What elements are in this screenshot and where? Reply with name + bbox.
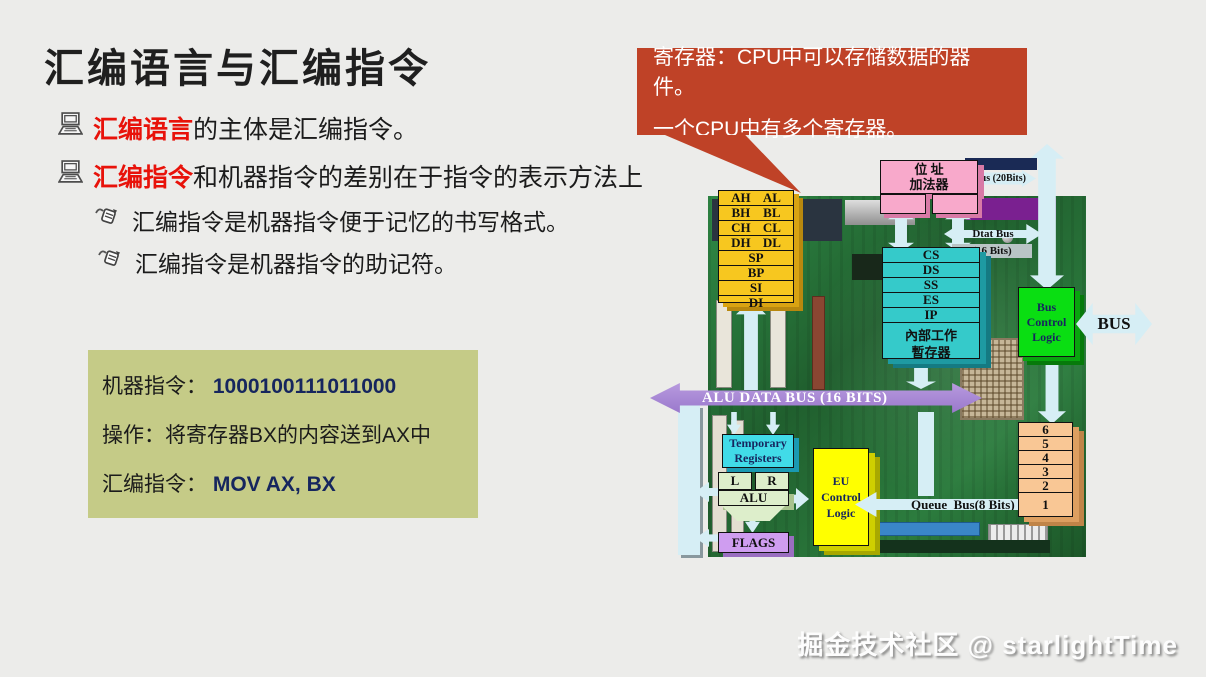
reg-dh: DH	[731, 235, 751, 251]
bullet-1-rest: 的主体是汇编指令。	[193, 116, 418, 144]
agp-slot	[812, 296, 825, 390]
alu-box: ALU	[718, 490, 789, 506]
reg-ds: DS	[923, 262, 940, 278]
address-adder: 位 址 加法器	[880, 160, 978, 194]
eu-line1: EU	[833, 473, 850, 489]
sub-bullet-2: 汇编指令是机器指令的助记符。	[97, 245, 457, 279]
segment-row-cs: CS	[883, 248, 979, 263]
reg-es: ES	[923, 292, 939, 308]
pci-slot	[716, 300, 732, 388]
reg-sp: SP	[748, 250, 763, 266]
segment-row-es: ES	[883, 293, 979, 308]
alu-label: ALU	[740, 490, 767, 506]
segment-row-ip: IP	[883, 308, 979, 323]
machine-instruction-value: 1000100111011000	[213, 375, 396, 398]
machine-instruction-line: 机器指令： 1000100111011000	[102, 370, 464, 400]
temp-regs-line1: Temporary	[729, 436, 787, 451]
reg-ah: AH	[731, 190, 751, 206]
pci-slot	[770, 300, 786, 388]
eu-line2: Control	[821, 489, 861, 505]
temp-regs-line2: Registers	[734, 451, 781, 466]
reg-di: DI	[749, 295, 763, 311]
callout-pointer	[665, 135, 801, 193]
ram-slot	[858, 522, 980, 536]
register-row-sp: SP	[719, 251, 793, 266]
alu-r-label: R	[767, 473, 776, 489]
bcl-line1: Bus	[1037, 300, 1056, 315]
external-bus-arrow: BUS	[1076, 303, 1152, 345]
reg-cl: CL	[763, 220, 781, 236]
alu-input-r: R	[755, 472, 789, 490]
reg-al: AL	[763, 190, 781, 206]
reg-dl: DL	[763, 235, 781, 251]
bus-control-logic: Bus Control Logic	[1018, 287, 1075, 357]
alu-input-l: L	[718, 472, 752, 490]
reg-cs: CS	[923, 247, 940, 263]
assembly-instruction-value: MOV AX, BX	[213, 473, 336, 496]
assembly-instruction-line: 汇编指令： MOV AX, BX	[102, 468, 464, 498]
queue-cell: 1	[1019, 493, 1072, 516]
reg-si: SI	[750, 280, 762, 296]
operation-line: 操作：将寄存器BX的内容送到AX中	[102, 419, 464, 449]
page-title: 汇编语言与汇编指令	[44, 36, 431, 94]
board-edge	[850, 540, 1050, 553]
assembly-instruction-label: 汇编指令：	[102, 473, 207, 496]
internal-registers: 內部工作 暫存器	[883, 323, 979, 365]
computer-icon	[58, 160, 83, 192]
register-row-dx: DHDL	[719, 236, 793, 251]
slide: 汇编语言与汇编指令 汇编语言的主体是汇编指令。 汇编指令和机器指令的差别在于指令…	[0, 0, 1206, 677]
eu-line3: Logic	[827, 505, 856, 521]
bullet-1: 汇编语言的主体是汇编指令。	[58, 110, 418, 146]
register-row-cx: CHCL	[719, 221, 793, 236]
temporary-registers: Temporary Registers	[722, 434, 794, 468]
adder-latch-left	[880, 194, 926, 214]
reg-bl: BL	[763, 205, 780, 221]
reg-ip: IP	[925, 307, 938, 323]
writing-hand-icon	[94, 204, 120, 234]
bus20-arrow: Bus (20Bits)	[972, 170, 1036, 187]
segment-row-ds: DS	[883, 263, 979, 278]
register-row-ax: AHAL	[719, 191, 793, 206]
segment-register-box: CS DS SS ES IP 內部工作 暫存器	[882, 247, 980, 359]
bullet-2-rest: 和机器指令的差别在于指令的表示方法上	[193, 164, 643, 192]
instruction-queue: 6 5 4 3 2 1	[1018, 422, 1073, 517]
address-adder-line2: 加法器	[909, 177, 948, 192]
computer-icon	[58, 112, 83, 144]
reg-ch: CH	[731, 220, 751, 236]
register-row-si: SI	[719, 281, 793, 296]
reg-bp: BP	[748, 265, 765, 281]
machine-instruction-label: 机器指令：	[102, 375, 207, 398]
bullet-2-text: 汇编指令和机器指令的差别在于指令的表示方法上	[93, 158, 643, 194]
alu-l-label: L	[731, 473, 740, 489]
bullet-1-text: 汇编语言的主体是汇编指令。	[93, 110, 418, 146]
alubus-queuebus-link	[918, 412, 934, 496]
left-bus-line	[678, 405, 700, 555]
flags-register: FLAGS	[718, 532, 789, 553]
sub-bullet-1: 汇编指令是机器指令便于记忆的书写格式。	[94, 203, 569, 237]
keyword: 汇编语言	[93, 116, 193, 144]
reg-ss: SS	[924, 277, 938, 293]
queue-2: 2	[1042, 478, 1049, 494]
writing-hand-icon	[97, 246, 123, 276]
segment-row-ss: SS	[883, 278, 979, 293]
adder-latch-right	[932, 194, 978, 214]
queue-cell: 2	[1019, 479, 1072, 493]
external-bus-label: BUS	[1097, 314, 1130, 334]
internal-regs-line1: 內部工作	[905, 327, 957, 344]
instruction-example-box: 机器指令： 1000100111011000 操作：将寄存器BX的内容送到AX中…	[88, 350, 478, 518]
register-row-di: DI	[719, 296, 793, 310]
sub-bullet-1-text: 汇编指令是机器指令便于记忆的书写格式。	[132, 203, 569, 237]
bus20-label: Bus (20Bits)	[974, 173, 1026, 184]
callout-line-1: 寄存器：CPU中可以存储数据的器件。	[653, 41, 1011, 101]
register-callout: 寄存器：CPU中可以存储数据的器件。 一个CPU中有多个寄存器。	[637, 48, 1027, 135]
address-adder-line1: 位 址	[914, 162, 943, 177]
general-register-stack: AHAL BHBL CHCL DHDL SP BP SI DI	[718, 190, 794, 303]
bcl-line2: Control	[1027, 315, 1067, 330]
keyword: 汇编指令	[93, 164, 193, 192]
sub-bullet-2-text: 汇编指令是机器指令的助记符。	[135, 245, 457, 279]
bcl-line3: Logic	[1032, 330, 1061, 345]
flags-label: FLAGS	[732, 535, 775, 551]
register-row-bp: BP	[719, 266, 793, 281]
bullet-2: 汇编指令和机器指令的差别在于指令的表示方法上	[58, 158, 643, 194]
register-row-bx: BHBL	[719, 206, 793, 221]
reg-bh: BH	[731, 205, 750, 221]
internal-regs-line2: 暫存器	[911, 344, 950, 361]
queue-1: 1	[1042, 497, 1049, 513]
watermark: 掘金技术社区 @ starlightTime	[797, 625, 1178, 662]
eu-control-logic: EU Control Logic	[813, 448, 869, 546]
alu-data-bus-label: ALU DATA BUS (16 BITS)	[702, 390, 887, 407]
